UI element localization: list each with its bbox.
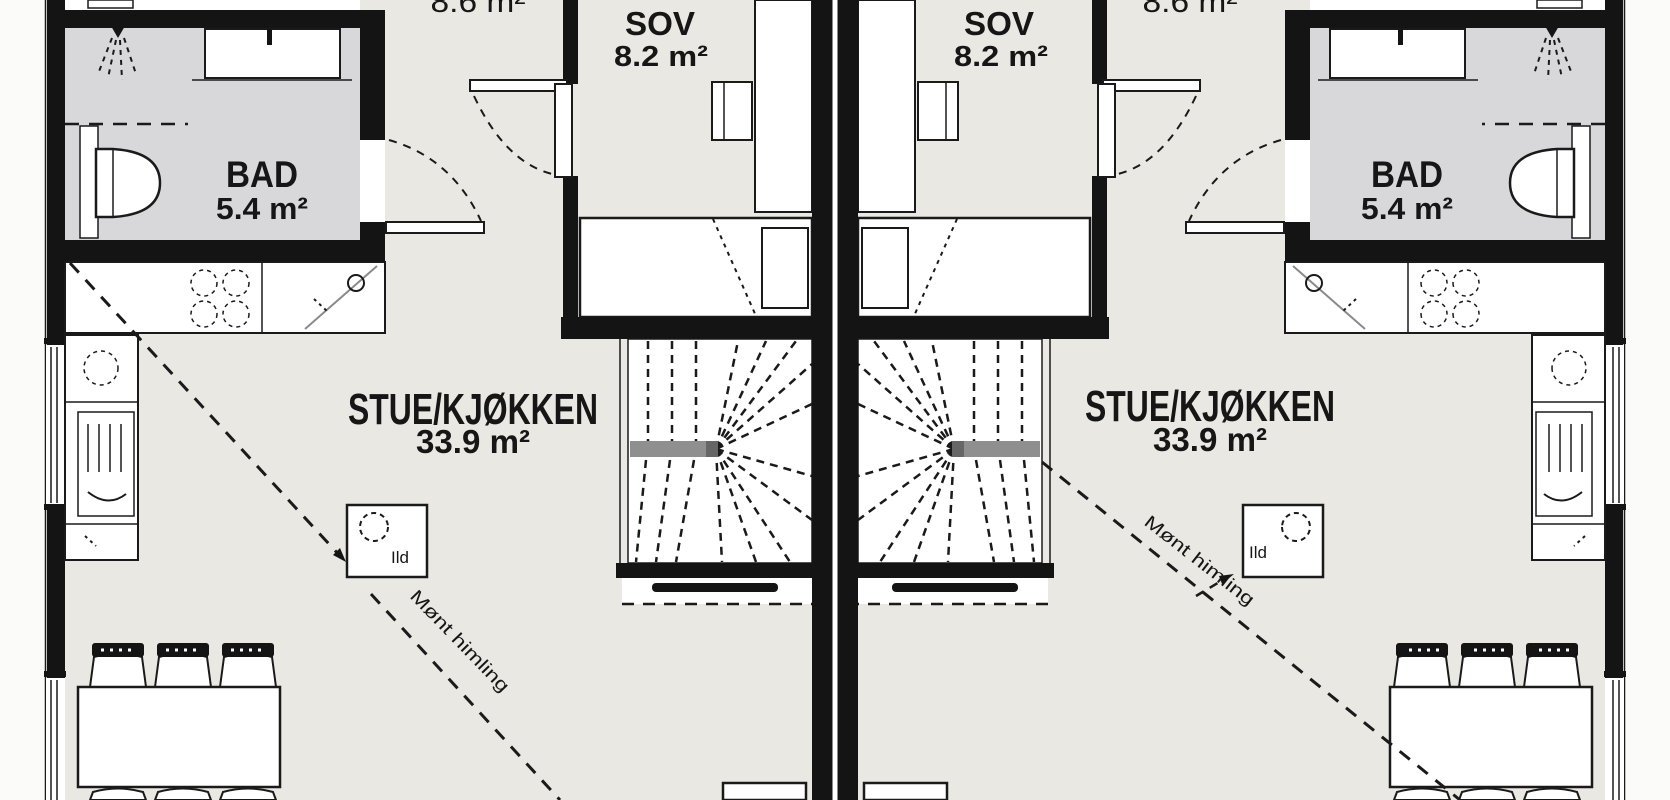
fireplace-label-right: Ild: [1249, 543, 1267, 562]
room-area-stue-left: 33.9 m²: [416, 423, 530, 460]
room-area-bad-left: 5.4 m²: [216, 191, 308, 226]
room-area-top-right: 8.6 m²: [1143, 0, 1238, 19]
room-label-bad-left: BAD: [226, 154, 298, 195]
floor-plan-page: 8.6 m² SOV 8.2 m² BAD 5.4 m² STUE/KJØKKE…: [0, 0, 1670, 800]
party-wall: [812, 0, 858, 800]
floor-plan-drawing: 8.6 m² SOV 8.2 m² BAD 5.4 m² STUE/KJØKKE…: [0, 0, 1670, 800]
room-area-bad-right: 5.4 m²: [1361, 191, 1453, 226]
room-label-sov-right: SOV: [964, 5, 1034, 42]
room-label-bad-right: BAD: [1371, 154, 1443, 195]
room-area-sov-left: 8.2 m²: [614, 41, 708, 73]
fireplace-label-left: Ild: [391, 548, 409, 567]
room-label-sov-left: SOV: [625, 5, 695, 42]
room-area-stue-right: 33.9 m²: [1153, 421, 1267, 458]
room-area-top-left: 8.6 m²: [431, 0, 526, 19]
room-area-sov-right: 8.2 m²: [954, 41, 1048, 73]
